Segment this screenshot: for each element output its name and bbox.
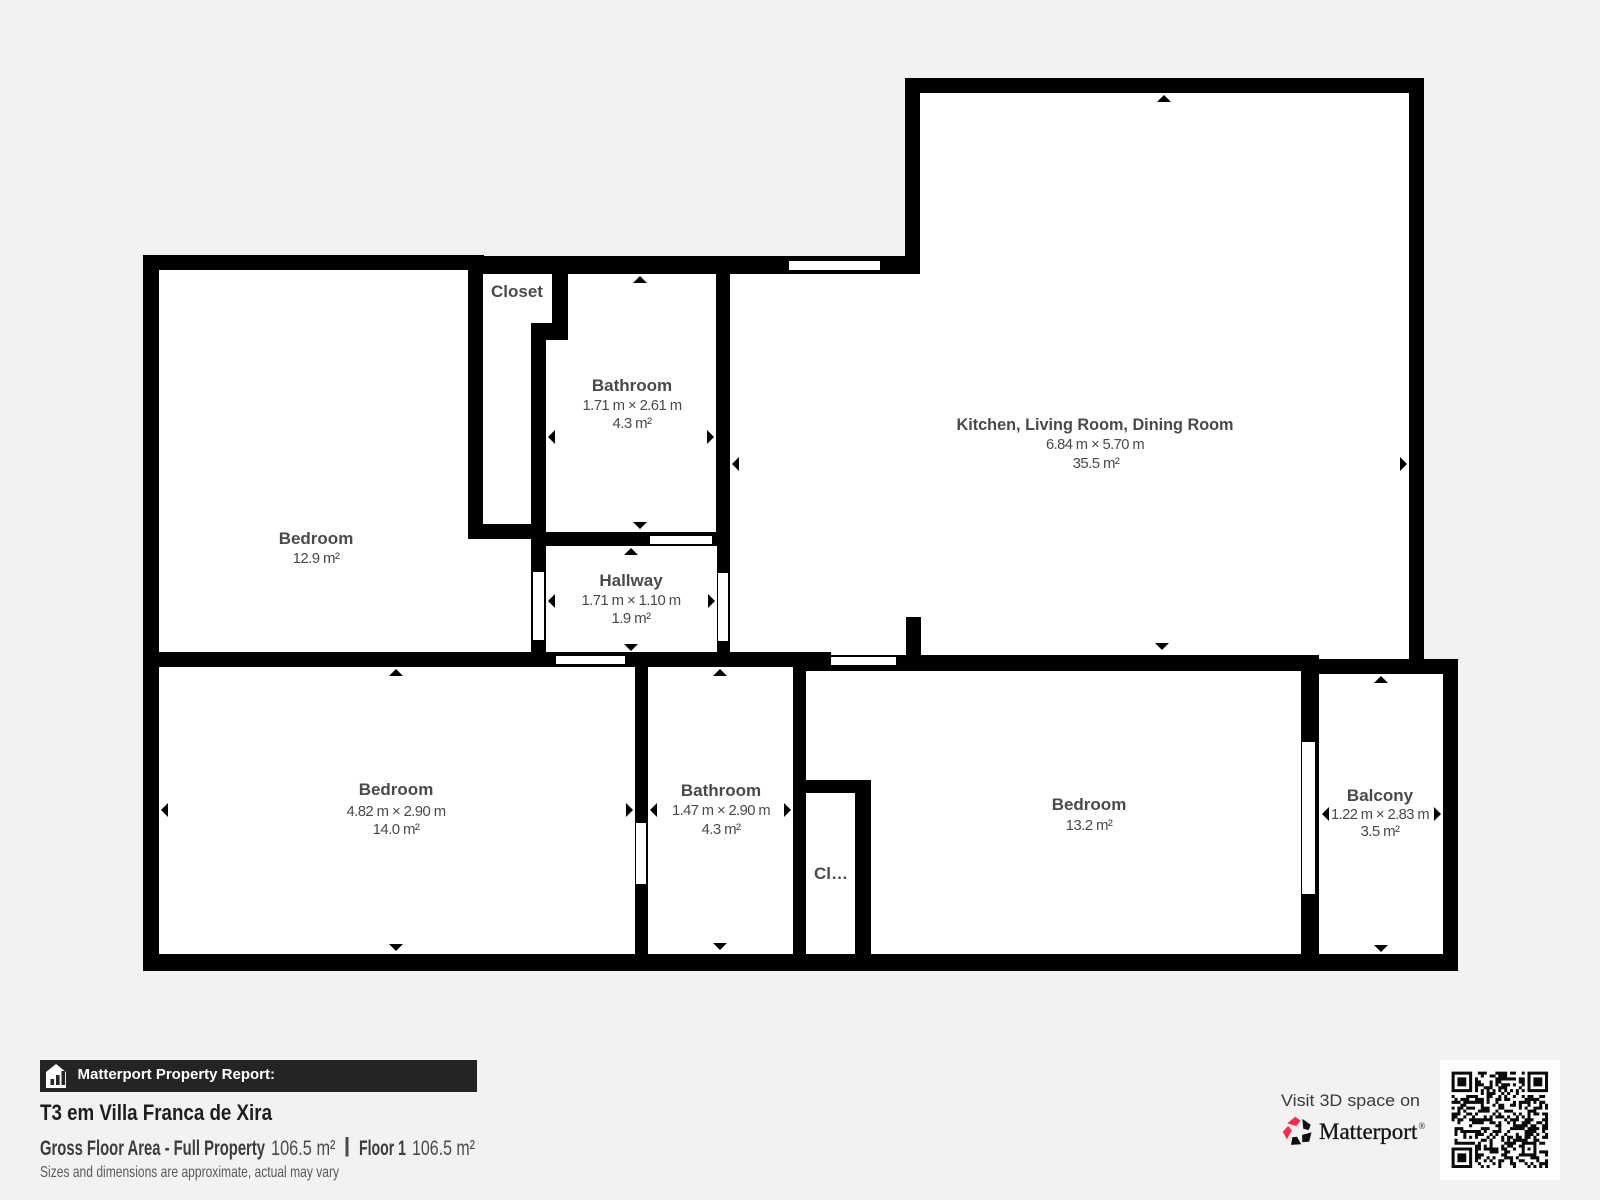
svg-text:Floor 1: Floor 1 (359, 1137, 406, 1160)
svg-text:1.9 m²: 1.9 m² (612, 610, 652, 627)
svg-text:Matterport: Matterport (1319, 1119, 1418, 1144)
svg-text:T3 em Villa Franca de Xira: T3 em Villa Franca de Xira (40, 1100, 273, 1125)
svg-text:Gross Floor Area - Full Proper: Gross Floor Area - Full Property (40, 1137, 265, 1160)
svg-text:4.3 m²: 4.3 m² (702, 821, 742, 838)
svg-text:Sizes and dimensions are appro: Sizes and dimensions are approximate, ac… (40, 1164, 339, 1181)
svg-text:106.5 m²: 106.5 m² (412, 1137, 475, 1160)
svg-text:Visit 3D space on: Visit 3D space on (1281, 1091, 1420, 1110)
svg-text:Cl…: Cl… (814, 864, 848, 883)
svg-text:Hallway: Hallway (599, 571, 663, 590)
svg-text:1.71 m × 1.10 m: 1.71 m × 1.10 m (582, 592, 681, 609)
svg-text:1.22 m × 2.83 m: 1.22 m × 2.83 m (1331, 806, 1429, 823)
svg-text:Bedroom: Bedroom (359, 780, 434, 799)
svg-text:Balcony: Balcony (1347, 786, 1414, 805)
svg-text:14.0 m²: 14.0 m² (373, 821, 420, 838)
svg-text:12.9 m²: 12.9 m² (293, 550, 340, 567)
svg-text:6.84 m × 5.70 m: 6.84 m × 5.70 m (1046, 436, 1144, 453)
svg-text:Bathroom: Bathroom (592, 376, 672, 395)
svg-text:Matterport Property Report:: Matterport Property Report: (78, 1067, 276, 1083)
svg-text:Bedroom: Bedroom (279, 529, 354, 548)
svg-text:106.5 m²: 106.5 m² (271, 1137, 336, 1160)
svg-text:3.5 m²: 3.5 m² (1361, 823, 1401, 840)
svg-text:1.71 m × 2.61 m: 1.71 m × 2.61 m (583, 397, 682, 414)
svg-text:4.82 m × 2.90 m: 4.82 m × 2.90 m (347, 803, 446, 820)
svg-text:®: ® (1419, 1121, 1426, 1131)
svg-text:35.5 m²: 35.5 m² (1073, 455, 1120, 472)
svg-text:Bathroom: Bathroom (681, 781, 761, 800)
svg-text:13.2 m²: 13.2 m² (1066, 817, 1113, 834)
svg-text:1.47 m × 2.90 m: 1.47 m × 2.90 m (672, 802, 770, 819)
svg-text:Bedroom: Bedroom (1052, 795, 1127, 814)
svg-text:4.3 m²: 4.3 m² (613, 415, 653, 432)
svg-text:Kitchen, Living Room, Dining R: Kitchen, Living Room, Dining Room (957, 415, 1234, 434)
svg-text:Closet: Closet (491, 282, 543, 301)
